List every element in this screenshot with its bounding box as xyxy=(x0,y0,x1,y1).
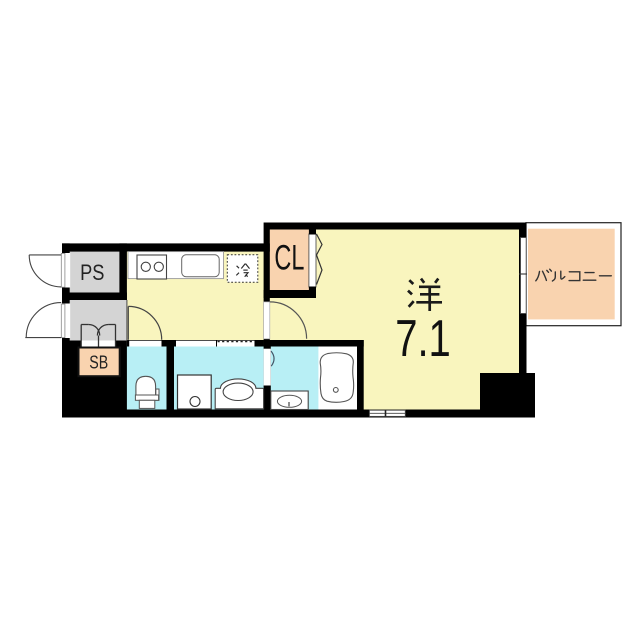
svg-text:PS: PS xyxy=(80,262,104,286)
svg-text:SB: SB xyxy=(89,353,108,373)
svg-text:7.1: 7.1 xyxy=(395,309,451,367)
svg-text:CL: CL xyxy=(274,239,304,278)
